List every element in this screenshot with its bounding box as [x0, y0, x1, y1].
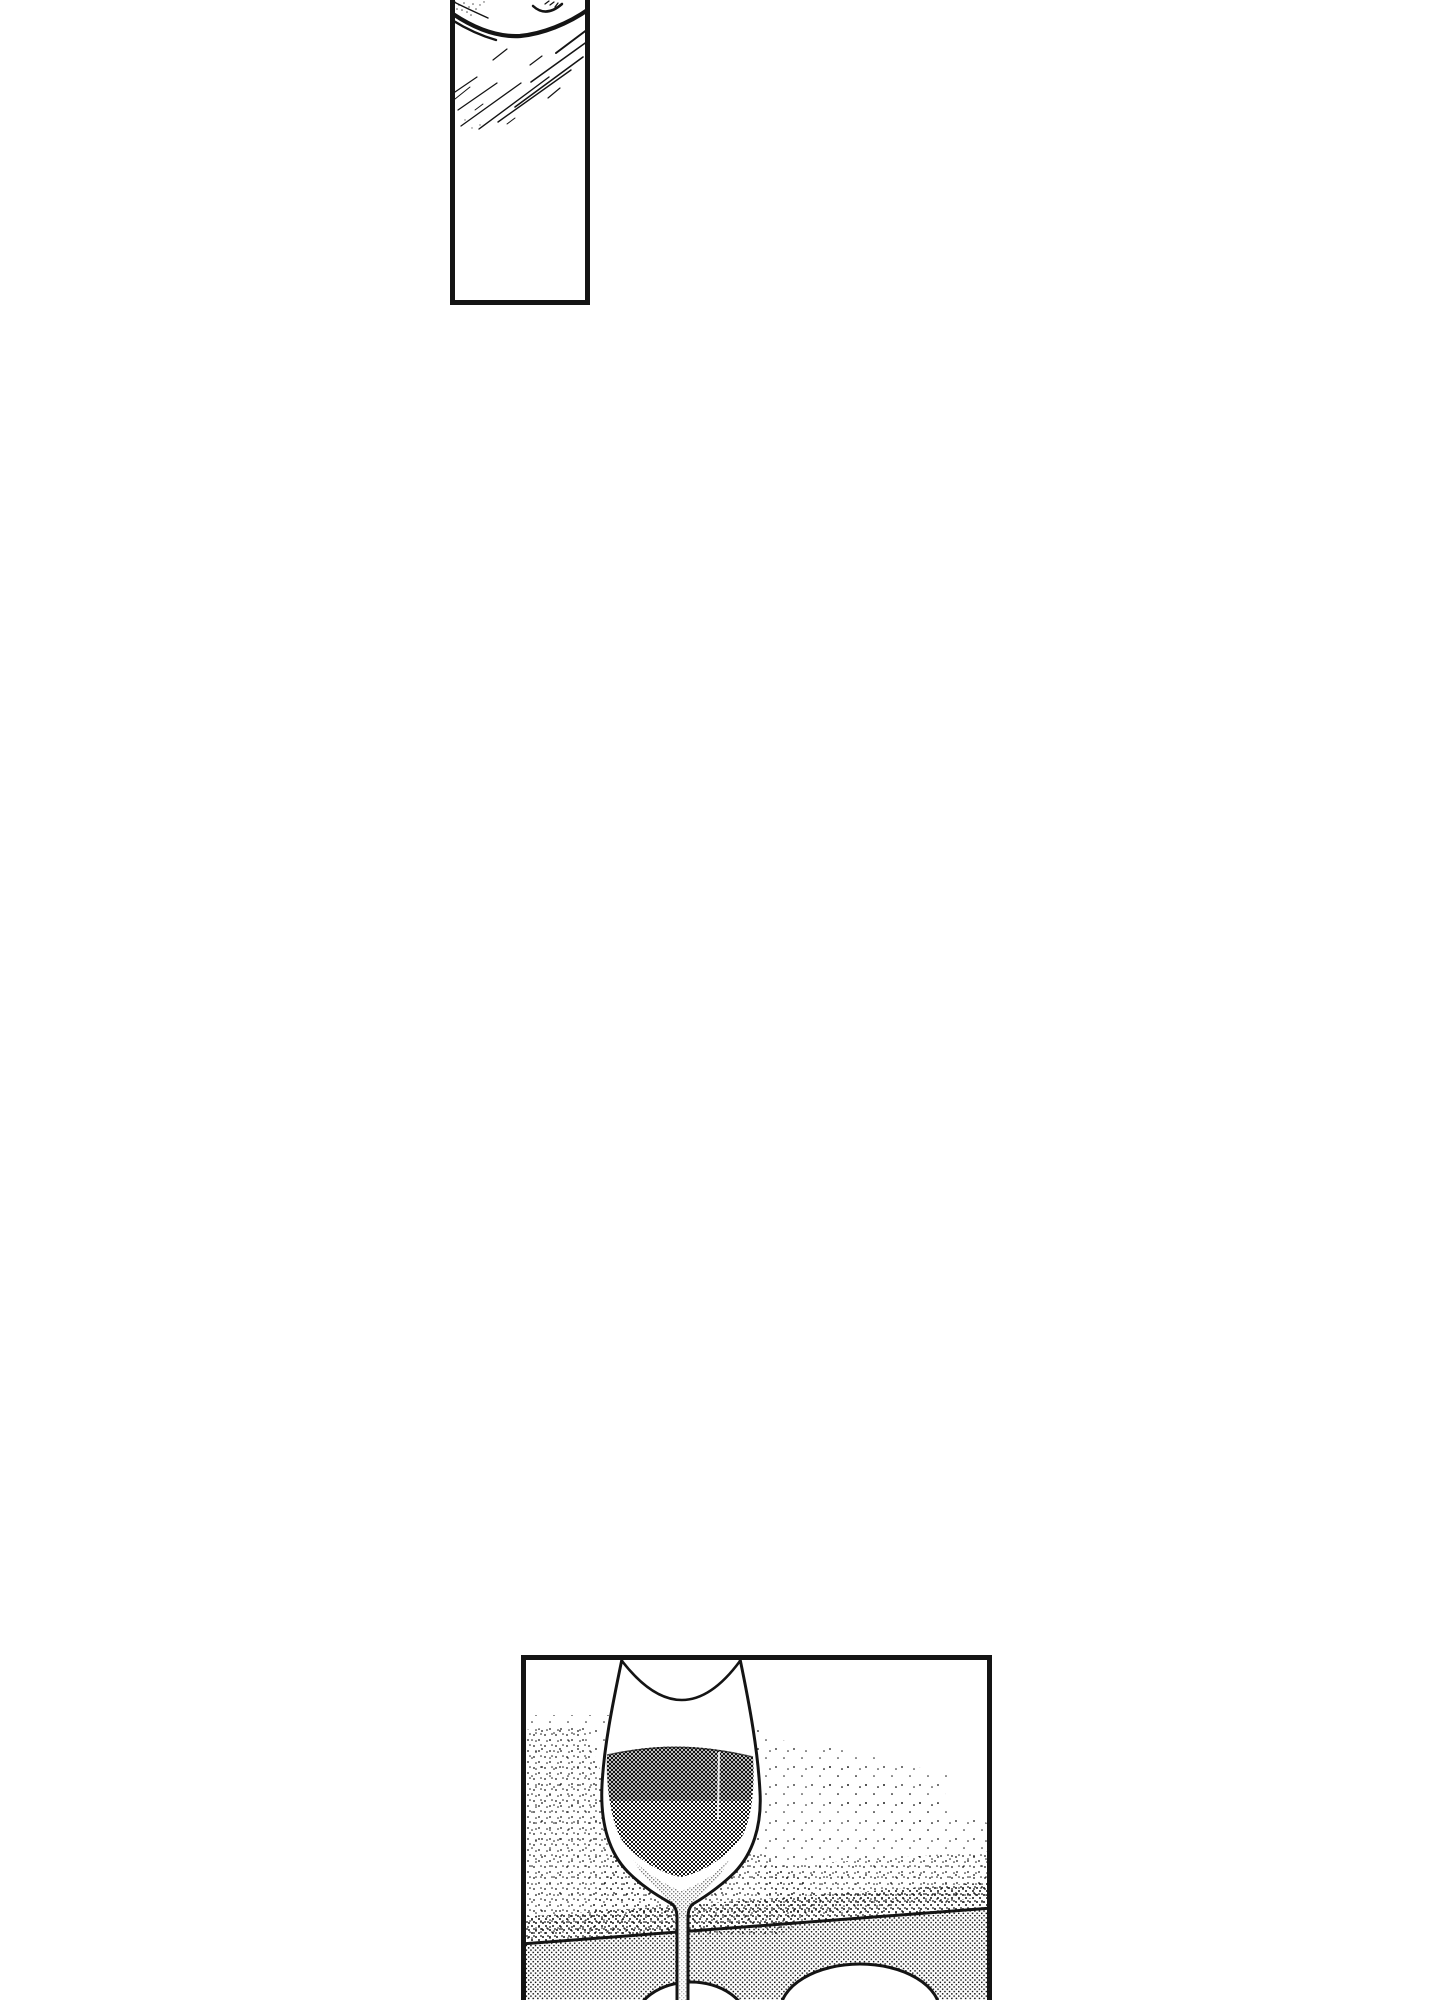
panel-background: [450, 0, 590, 306]
wine-highlight: [718, 1752, 719, 1820]
face-closeup-art: [450, 0, 590, 306]
panel-face-closeup: [450, 0, 590, 306]
wine-surface-shade: [607, 1746, 754, 1801]
wine-glass-art: [521, 1655, 992, 2000]
panel-wine-glass: [521, 1655, 992, 2000]
stem-shading: [678, 1918, 687, 2000]
manga-page: [0, 0, 1440, 2000]
